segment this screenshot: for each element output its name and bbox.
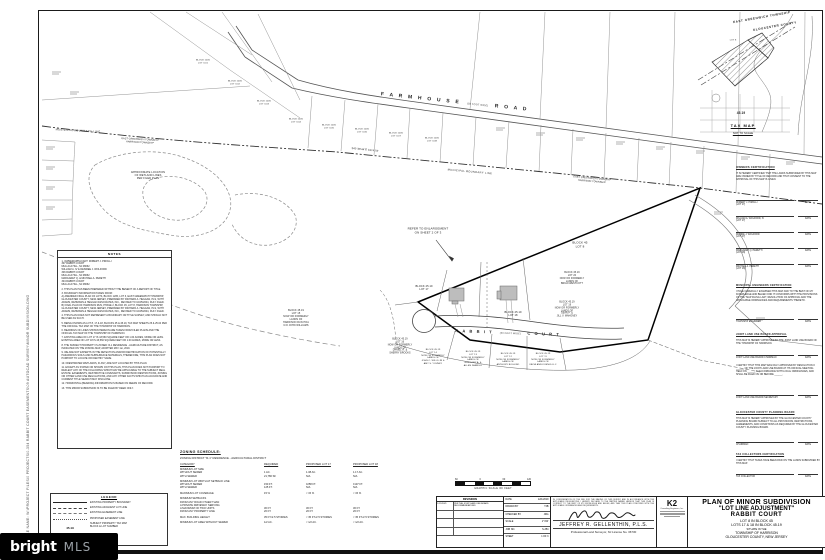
jlub-chairman-line: JOINT LAND USE BOARD CHAIRMAN (736, 355, 794, 359)
owners-cert-heading: OWNERS CERTIFICATION (736, 166, 775, 170)
firm-phone-blur (664, 516, 680, 517)
lot20-label: BLOCK 45.19 LOT 20 NOW OR FORMERLY LANDS… (560, 272, 584, 286)
revision-text: PER THE JOINT LAND USE BOARD RECOMMENDAT… (454, 502, 503, 510)
lot17-label: BLOCK 45.19 LOT 17 (415, 285, 432, 291)
county-board-heading: GLOUCESTER COUNTY PLANNING BOARD (736, 411, 795, 414)
zoning-cell: MINIMUM SETBACKS FROM ANY ROAD OTHER THA… (180, 497, 264, 513)
scale-tick: 60 (455, 478, 458, 481)
zoning-cell: MINIMUM LOT SIZE WITHOUT SEWER WITH SEWE… (180, 468, 264, 478)
notes-box: NOTES 1. OWNER/APPLICANT: ROBERT J. PIRO… (57, 250, 172, 449)
dash-dot-line-sample (53, 508, 87, 509)
zoning-cell: 30 FT. 20 FT. (264, 497, 306, 513)
zoning-cell: MAX. BUILDING HEIGHT (180, 516, 264, 519)
legend-label: EXISTING EASEMENT LINE (90, 512, 122, 515)
date-line: DATE (798, 232, 818, 239)
revision-row: 1/15/2021 PER THE JOINT LAND USE BOARD R… (437, 502, 503, 511)
date-line: DATE (798, 200, 818, 207)
jlub-secretary-line: JOINT LAND USE BOARD SECRETARY (736, 395, 794, 399)
zoning-cell: < 15 % (353, 492, 400, 495)
b1205-lot-302: BLOCK 1205 LOT 3.02 (228, 80, 242, 86)
date-line: DATE (798, 474, 818, 478)
date-line: DATE (798, 319, 818, 323)
zoning-cell: 15 % (264, 492, 306, 495)
jlub-secretary-row: JOINT LAND USE BOARD SECRETARY DATE (736, 395, 820, 399)
info-value: S-354 (542, 528, 548, 533)
zoning-col-required: REQUIRED (264, 463, 306, 466)
house-footprints (449, 286, 517, 304)
owner-name: DIANNE J. WOLFORD (LOT 17) (736, 232, 794, 239)
date-line: DATE (798, 216, 818, 223)
k2-logo: K2 (657, 499, 687, 508)
surveyor-signature (567, 509, 637, 523)
note-item: 5. BEING KNOWN AS LOT 8, 17 & 18, BLOCKS… (62, 322, 168, 328)
info-value: 1 OF 3 (541, 535, 548, 541)
revision-row (437, 528, 503, 537)
scale-bar-caption: GRAPHIC SCALE OF FEET (455, 487, 531, 490)
info-value: 12/1/2019 (538, 498, 549, 503)
jlub-heading: JOINT LAND USE BOARD APPROVAL (736, 333, 787, 336)
note-item: 11. EXCEPT AS STATED OR SHOWN ON THIS PL… (62, 366, 168, 381)
zoning-row: MAXIMUM LOT COVERAGE 15 % < 15 % < 15 % (180, 492, 400, 495)
note-item: 3. BOUNDARY INFORMATION TAKEN FROM: A) A… (62, 292, 168, 313)
legend-item: 45.19 SUBJECT PROPERTY TAX MAP BLOCK & L… (53, 523, 165, 529)
zoning-cell: ±137 FT. N/A (353, 480, 400, 490)
b1205-lot-306: BLOCK 1205 LOT 3.06 (355, 128, 369, 134)
zoning-cell: 1/2 AC. (264, 521, 306, 524)
jlub-body1: THIS MAP IS HEREBY APPROVED BY THE JOINT… (736, 339, 820, 345)
zoning-cell: MAXIMUM LOT COVERAGE (180, 492, 264, 495)
wetlands-callout: APPROXIMATE LOCATION OF WETLAND LINES PE… (131, 171, 165, 181)
solid-line-sample (53, 502, 87, 503)
firm-address-blur (660, 511, 685, 512)
zoning-cell: 150 FT. 125 FT. (264, 480, 306, 490)
owner-signature-row: WILLIAM A. WOLFORD, IV (LOT 17) DATE (736, 216, 820, 223)
scale-tick: 120 (527, 478, 531, 481)
title-line-3: RABBIT COURT (688, 512, 825, 518)
enlargement-leader-line (436, 240, 454, 261)
b1205-lot-303: BLOCK 1205 LOT 3.03 (257, 100, 271, 106)
zoning-cell: < 35 FT./2.5 STORIES (353, 516, 400, 519)
revision-date: 1/15/2021 (437, 502, 454, 510)
owner-name: WILLIAM A. WOLFORD, IV (LOT 17) (736, 216, 794, 223)
bottom-title-strip: REVISIONS 1/15/2021 PER THE JOINT LAND U… (436, 496, 825, 548)
zoning-col-lot17: PROPOSED LOT 17 (306, 463, 353, 466)
legend-label: SUBJECT PROPERTY TAX MAP BLOCK & LOT NUM… (90, 523, 127, 529)
owner-signature-row: MICHAEL A. PERETTI (LOT 18) DATE (736, 264, 820, 271)
zoning-cell: 30 FT. 20 FT. (353, 497, 400, 513)
tax-collector-heading: TAX COLLECTORS CERTIFICATION (736, 453, 784, 456)
revision-row (437, 519, 503, 528)
owner-signature-row: MARGARET Q. PERETTI (LOT 18) DATE (736, 248, 820, 255)
legend-label: EXISTING ADJACENT LOT LINE (90, 507, 127, 510)
zoning-cell: MINIMUM LOT WIDTH AT SETBACK LINE WITHOU… (180, 480, 264, 490)
zoning-cell: < 1/2 AC. (353, 521, 400, 524)
note-item: 8. THE SUBJECT PROPERTY IS ZONED: R-1 RE… (62, 344, 168, 350)
enlargement-callout: REFER TO ENLARGEMENT ON SHEET 2 OF 3 (408, 227, 449, 235)
surveyor-statement: IN CONSIDERATION OF THE FEE FOR THE MAKI… (553, 499, 654, 508)
b1205-lot-308: BLOCK 1205 LOT 3.08 (425, 137, 439, 143)
note-item: 7. EXISTING AREA OF LOT 17 IS 43,560 SQU… (62, 336, 168, 342)
revisions-table: REVISIONS 1/15/2021 PER THE JOINT LAND U… (437, 497, 504, 547)
engineer-cert-heading: MUNICIPAL ENGINEERS CERTIFICATION (736, 284, 792, 287)
info-value: JRG (544, 513, 549, 518)
scale-tick: 0 (479, 478, 480, 481)
lot15-label: BLOCK 45.19 LOT 15 NOW OR FORMERLY LANDS… (283, 309, 309, 327)
zoning-cell: 1 AC. 21,780 SF (264, 468, 306, 478)
notes-title: NOTES (58, 251, 171, 258)
engineer-line: TOWNSHIP ENGINEER (736, 319, 794, 323)
zoning-row: MAX. BUILDING HEIGHT 35 FT./2.5 STORIES … (180, 516, 400, 519)
note-item: 6. BEARINGS OF LINES SHOWN HEREON ARE TA… (62, 329, 168, 335)
lot12-label: BLOCK 45.19 LOT 12 NOW OR FORMERLY LANDS… (496, 353, 519, 367)
zoning-cell: < 15 % (306, 492, 353, 495)
date-line: DATE (798, 355, 818, 359)
lot11-label: BLOCK 45.19 LOT 11 NOW OR FORMERLY LANDS… (529, 353, 556, 367)
title-block: PLAN OF MINOR SUBDIVISION "LOT LINE ADJU… (688, 497, 825, 547)
lot8-label: BLOCK 45 LOT 8 (572, 241, 587, 249)
legend-item: PROPOSED EASEMENT LINE (53, 518, 165, 521)
info-value: 1"=60' (542, 520, 549, 525)
b1205-lot-307: BLOCK 1205 LOT 3.07 (389, 132, 403, 138)
engineer-cert-body: I HAVE CAREFULLY EXAMINED THIS MAP AND T… (736, 290, 820, 303)
zoning-row: MINIMUM LOT AREA WITHOUT SEWER 1/2 AC. <… (180, 521, 400, 524)
zoning-row: MINIMUM LOT SIZE WITHOUT SEWER WITH SEWE… (180, 468, 400, 478)
rabbit-court-label: R A B B I T (50 FOOT WIDE) C O U R T (455, 319, 561, 341)
date-line: DATE (798, 248, 818, 255)
firm-logo-block: K2 Consulting Engineers, Inc. (657, 497, 688, 547)
zoning-row: MINIMUM SETBACKS FROM ANY ROAD OTHER THA… (180, 497, 400, 513)
info-label: DATE (506, 498, 512, 503)
engineer-signature-row: TOWNSHIP ENGINEER DATE (736, 319, 820, 323)
title-line-5: LOTS 17 & 18 IN BLOCK 45.19 (688, 523, 825, 527)
dashed-line-sample (53, 513, 87, 514)
owner-name: MARGARET Q. PERETTI (LOT 18) (736, 248, 794, 255)
legend-title: LEGEND (53, 495, 165, 499)
mls-logo-text: MLS (64, 540, 92, 554)
note-item: 4. THIS PLAN DOES NOT REPRESENT A BOUNDA… (62, 314, 168, 320)
title-line-8: GLOUCESTER COUNTY, NEW JERSEY (688, 535, 825, 539)
note-item: 13. THIS MINOR SUBDIVISION IS TO BE FILE… (62, 387, 168, 390)
farmhouse-road-lines (228, 26, 822, 164)
certifications-column: OWNERS CERTIFICATION IT IS HEREBY CERTIF… (736, 0, 821, 560)
tax-collector-row: TAX COLLECTOR DATE (736, 474, 820, 478)
firm-name: Consulting Engineers, Inc. (657, 508, 687, 510)
info-label: SCALE (506, 520, 514, 525)
jlub-body2: I CERTIFY THAT THIS MAP WAS DULY APPROVE… (736, 364, 820, 377)
zoning-schedule: ZONING SCHEDULE: ZONING DISTRICT "R-1" R… (180, 450, 400, 524)
legend-label: PROPOSED EASEMENT LINE (90, 518, 125, 521)
surveyor-certification-block: IN CONSIDERATION OF THE FEE FOR THE MAKI… (551, 497, 657, 547)
info-label: JOB NO. (506, 528, 516, 533)
surveyor-license: Professional Land Surveyor, NJ License N… (553, 528, 654, 533)
zoning-district: ZONING DISTRICT "R-1" RESIDENCE - AGRICU… (180, 456, 400, 460)
info-label: DRAWN BY (506, 505, 519, 510)
lot16-label: BLOCK 45.19 LOT 16 NOW OR FORMERLY LANDS… (388, 338, 412, 355)
info-label: CHECKED BY (506, 513, 522, 518)
date-line: DATE (798, 442, 818, 446)
lot19-label: BLOCK 45.19 LOT 19 NOW OR FORMERLY LANDS… (555, 301, 579, 318)
tax-collector-line: TAX COLLECTOR (736, 474, 794, 478)
firm-address-blur (660, 513, 685, 514)
legend-item: EXISTING EASEMENT LINE (53, 512, 165, 515)
zoning-col-lot18: PROPOSED LOT 18 (353, 463, 400, 466)
zoning-cell: 1.38 AC. N/A (306, 468, 353, 478)
owner-signature-row: DIANNE J. WOLFORD (LOT 17) DATE (736, 232, 820, 239)
note-item: 10. FRESHWATER WETLANDS, IF ANY, ARE NOT… (62, 362, 168, 365)
lot18-label: BLOCK 45.19 LOT 18 (504, 311, 521, 317)
title-line-1: PLAN OF MINOR SUBDIVISION (688, 499, 825, 506)
county-chairman-row: CHAIRMAN DATE (736, 442, 820, 446)
owner-name: ROBERT J. PIROLLI (LOT 17) (736, 200, 794, 207)
owner-signature-row: ROBERT J. PIROLLI (LOT 17) DATE (736, 200, 820, 207)
owners-cert-body: IT IS HEREBY CERTIFIED THAT THE LANDS SU… (736, 172, 820, 181)
county-chairman-line: CHAIRMAN (736, 442, 794, 446)
left-edge-parcel-lines (42, 86, 250, 236)
legend-item: EXISTING PROPERTY BOUNDARY (53, 502, 165, 505)
b1205-lot-301: BLOCK 1205 LOT 3.01 (196, 59, 210, 65)
zoning-cell: MINIMUM LOT AREA WITHOUT SEWER (180, 521, 264, 524)
lot14-label: BLOCK 45.19 LOT 14 NOW OR FORMERLY LANDS… (421, 349, 444, 366)
note-item: 12. HORIZONTAL (BEARING) INFORMATION IS … (62, 382, 168, 385)
dotted-line-sample (53, 519, 87, 520)
date-line: DATE (798, 264, 818, 271)
note-item: 9. WE ARE NOT EXPERTS IN THE DETECTION A… (62, 351, 168, 360)
jlub-chairman-row: JOINT LAND USE BOARD CHAIRMAN DATE (736, 355, 820, 359)
b1205-lot-305: BLOCK 1205 LOT 3.05 (322, 124, 336, 130)
zoning-cell: ±258 FT. N/A (306, 480, 353, 490)
zoning-row: MINIMUM LOT WIDTH AT SETBACK LINE WITHOU… (180, 480, 400, 490)
drawing-info-table: DATE12/1/2019 DRAWN BYTJB CHECKED BYJRG … (504, 497, 551, 547)
zoning-cell: 1.17 AC. N/A (353, 468, 400, 478)
tax-collector-body: I CERTIFY THAT TAXES HAVE BEEN PAID ON T… (736, 459, 820, 465)
b1205-lot-304: BLOCK 1205 LOT 3.04 (289, 118, 303, 124)
legend-label: EXISTING PROPERTY BOUNDARY (90, 502, 131, 505)
info-value: TJB (544, 505, 548, 510)
note-item: 1. OWNER/APPLICANT: ROBERT J. PIROLLI 30… (62, 260, 168, 287)
scale-bar-graphic (455, 481, 531, 486)
note-item: 2. THIS PLAN HAS BEEN PREPARED WITHOUT T… (62, 288, 168, 291)
bright-mls-watermark: bright MLS (0, 533, 118, 560)
bright-logo-text: bright (10, 539, 57, 555)
county-board-body: THIS MAP IS HEREBY APPROVED BY THE GLOUC… (736, 417, 820, 430)
survey-plan-page: FILE NAME: W:\PROJECT FILES\0 PROJECTS\0… (0, 0, 825, 560)
info-label: SHEET (506, 535, 514, 541)
zoning-cell: < 35 FT./2.5 STORIES (306, 516, 353, 519)
lot13-label: BLOCK 45.19 LOT 13 NOW OR FORMERLY LANDS… (461, 351, 484, 368)
scale-tick: 60 (503, 478, 506, 481)
zoning-title: ZONING SCHEDULE: (180, 450, 400, 454)
zoning-col-category: CATEGORY (180, 463, 264, 466)
zoning-cell: 30 FT. 20 FT. (306, 497, 353, 513)
graphic-scale-bar: 60 0 60 120 GRAPHIC SCALE OF FEET (455, 478, 531, 490)
date-line: DATE (798, 395, 818, 399)
legend-item: EXISTING ADJACENT LOT LINE (53, 507, 165, 510)
zoning-cell: 35 FT./2.5 STORIES (264, 516, 306, 519)
revision-row (437, 511, 503, 520)
zoning-cell: < 1/2 AC. (306, 521, 353, 524)
owner-name: MICHAEL A. PERETTI (LOT 18) (736, 264, 794, 271)
